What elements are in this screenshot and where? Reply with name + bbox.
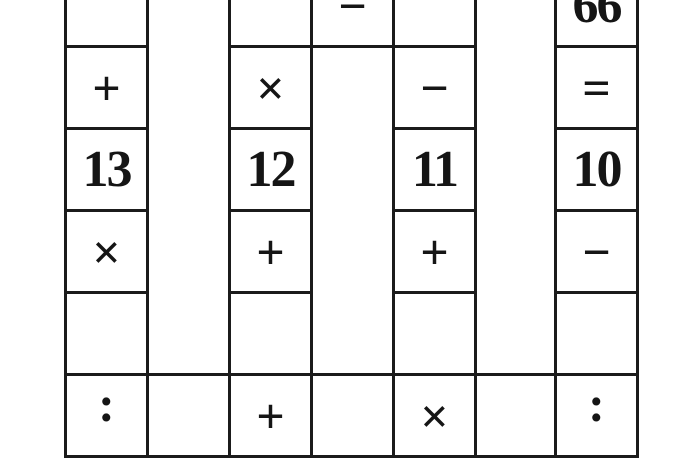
plus-operator-cell: + bbox=[392, 209, 477, 294]
cell-glyph: 11 bbox=[412, 144, 457, 196]
cell-glyph: × bbox=[420, 391, 449, 441]
empty-cell bbox=[392, 291, 477, 376]
cell-glyph: : bbox=[588, 379, 605, 429]
number-cell: 66 bbox=[554, 0, 639, 48]
cell-glyph: + bbox=[420, 227, 449, 277]
cell-glyph: + bbox=[256, 227, 285, 277]
empty-cell bbox=[64, 291, 149, 376]
equals-operator-cell: = bbox=[554, 45, 639, 130]
times-operator-cell: × bbox=[64, 209, 149, 294]
cell-glyph: 13 bbox=[83, 144, 131, 196]
cell-glyph: × bbox=[92, 227, 121, 277]
cell-glyph: 10 bbox=[573, 144, 621, 196]
cell-glyph: − bbox=[338, 0, 367, 31]
number-cell: 10 bbox=[554, 127, 639, 212]
divide-colon-operator-cell: : bbox=[554, 373, 639, 458]
plus-operator-cell: + bbox=[228, 373, 313, 458]
divide-colon-operator-cell: : bbox=[64, 373, 149, 458]
number-cell: 12 bbox=[228, 127, 313, 212]
minus-operator-cell: − bbox=[392, 45, 477, 130]
minus-operator-cell: − bbox=[554, 209, 639, 294]
number-cell: 11 bbox=[392, 127, 477, 212]
cell-glyph: 66 bbox=[573, 0, 621, 32]
cell-glyph: = bbox=[582, 63, 611, 113]
empty-cell bbox=[310, 373, 395, 458]
times-operator-cell: × bbox=[228, 45, 313, 130]
empty-cell bbox=[228, 291, 313, 376]
cell-glyph: : bbox=[98, 379, 115, 429]
empty-cell bbox=[474, 373, 559, 458]
empty-cell bbox=[228, 0, 313, 48]
puzzle-grid: −66+×−=13121110×++−:+×: bbox=[0, 0, 700, 430]
plus-operator-cell: + bbox=[228, 209, 313, 294]
plus-operator-cell: + bbox=[64, 45, 149, 130]
number-cell: 13 bbox=[64, 127, 149, 212]
cell-glyph: × bbox=[256, 63, 285, 113]
times-operator-cell: × bbox=[392, 373, 477, 458]
empty-cell bbox=[146, 373, 231, 458]
empty-cell bbox=[392, 0, 477, 48]
empty-cell bbox=[64, 0, 149, 48]
cell-glyph: − bbox=[420, 63, 449, 113]
cell-glyph: 12 bbox=[247, 144, 295, 196]
cell-glyph: + bbox=[92, 63, 121, 113]
cell-glyph: + bbox=[256, 391, 285, 441]
empty-cell bbox=[554, 291, 639, 376]
cell-glyph: − bbox=[582, 227, 611, 277]
minus-operator-cell: − bbox=[310, 0, 395, 48]
